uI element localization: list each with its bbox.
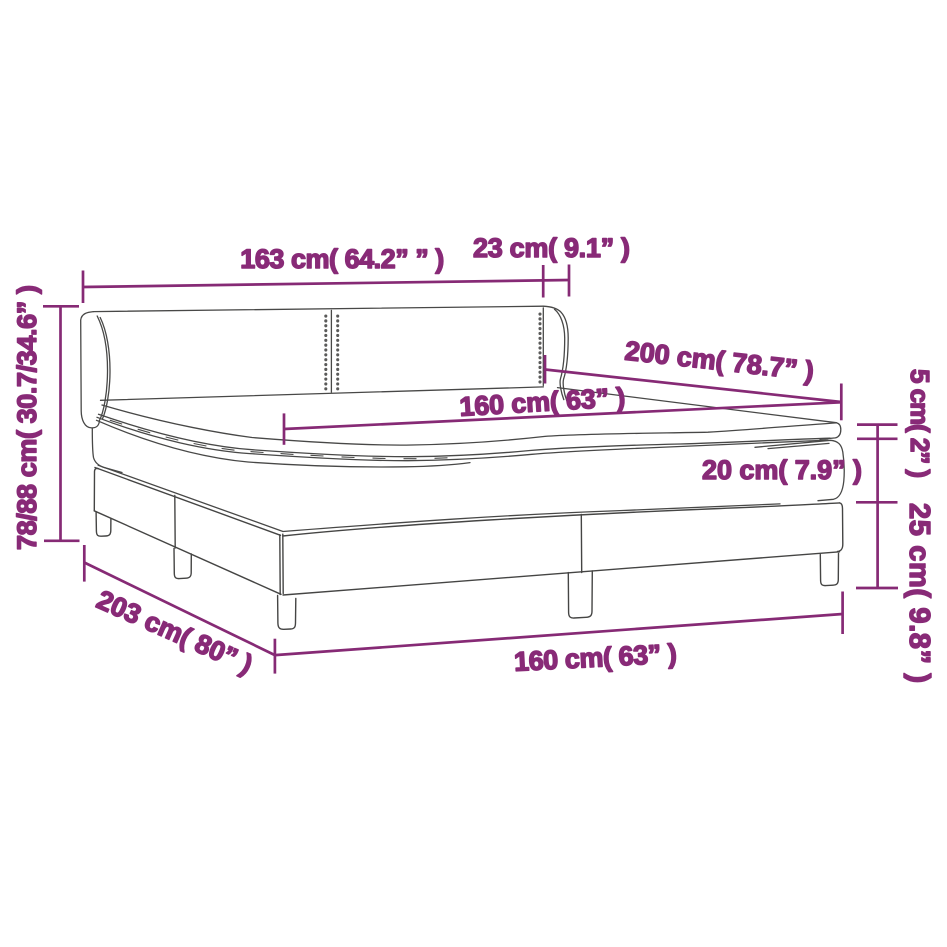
svg-text:23 cm( 9.1” ): 23 cm( 9.1” ) xyxy=(473,233,630,263)
svg-text:20 cm( 7.9” ): 20 cm( 7.9” ) xyxy=(702,455,862,485)
svg-text:5 cm( 2” ): 5 cm( 2” ) xyxy=(905,369,935,478)
svg-text:78/88 cm( 30.7/34.6” ): 78/88 cm( 30.7/34.6” ) xyxy=(12,285,42,550)
svg-text:163 cm( 64.2” ” ): 163 cm( 64.2” ” ) xyxy=(240,244,444,274)
svg-text:25 cm( 9.8” ): 25 cm( 9.8” ) xyxy=(903,503,935,683)
